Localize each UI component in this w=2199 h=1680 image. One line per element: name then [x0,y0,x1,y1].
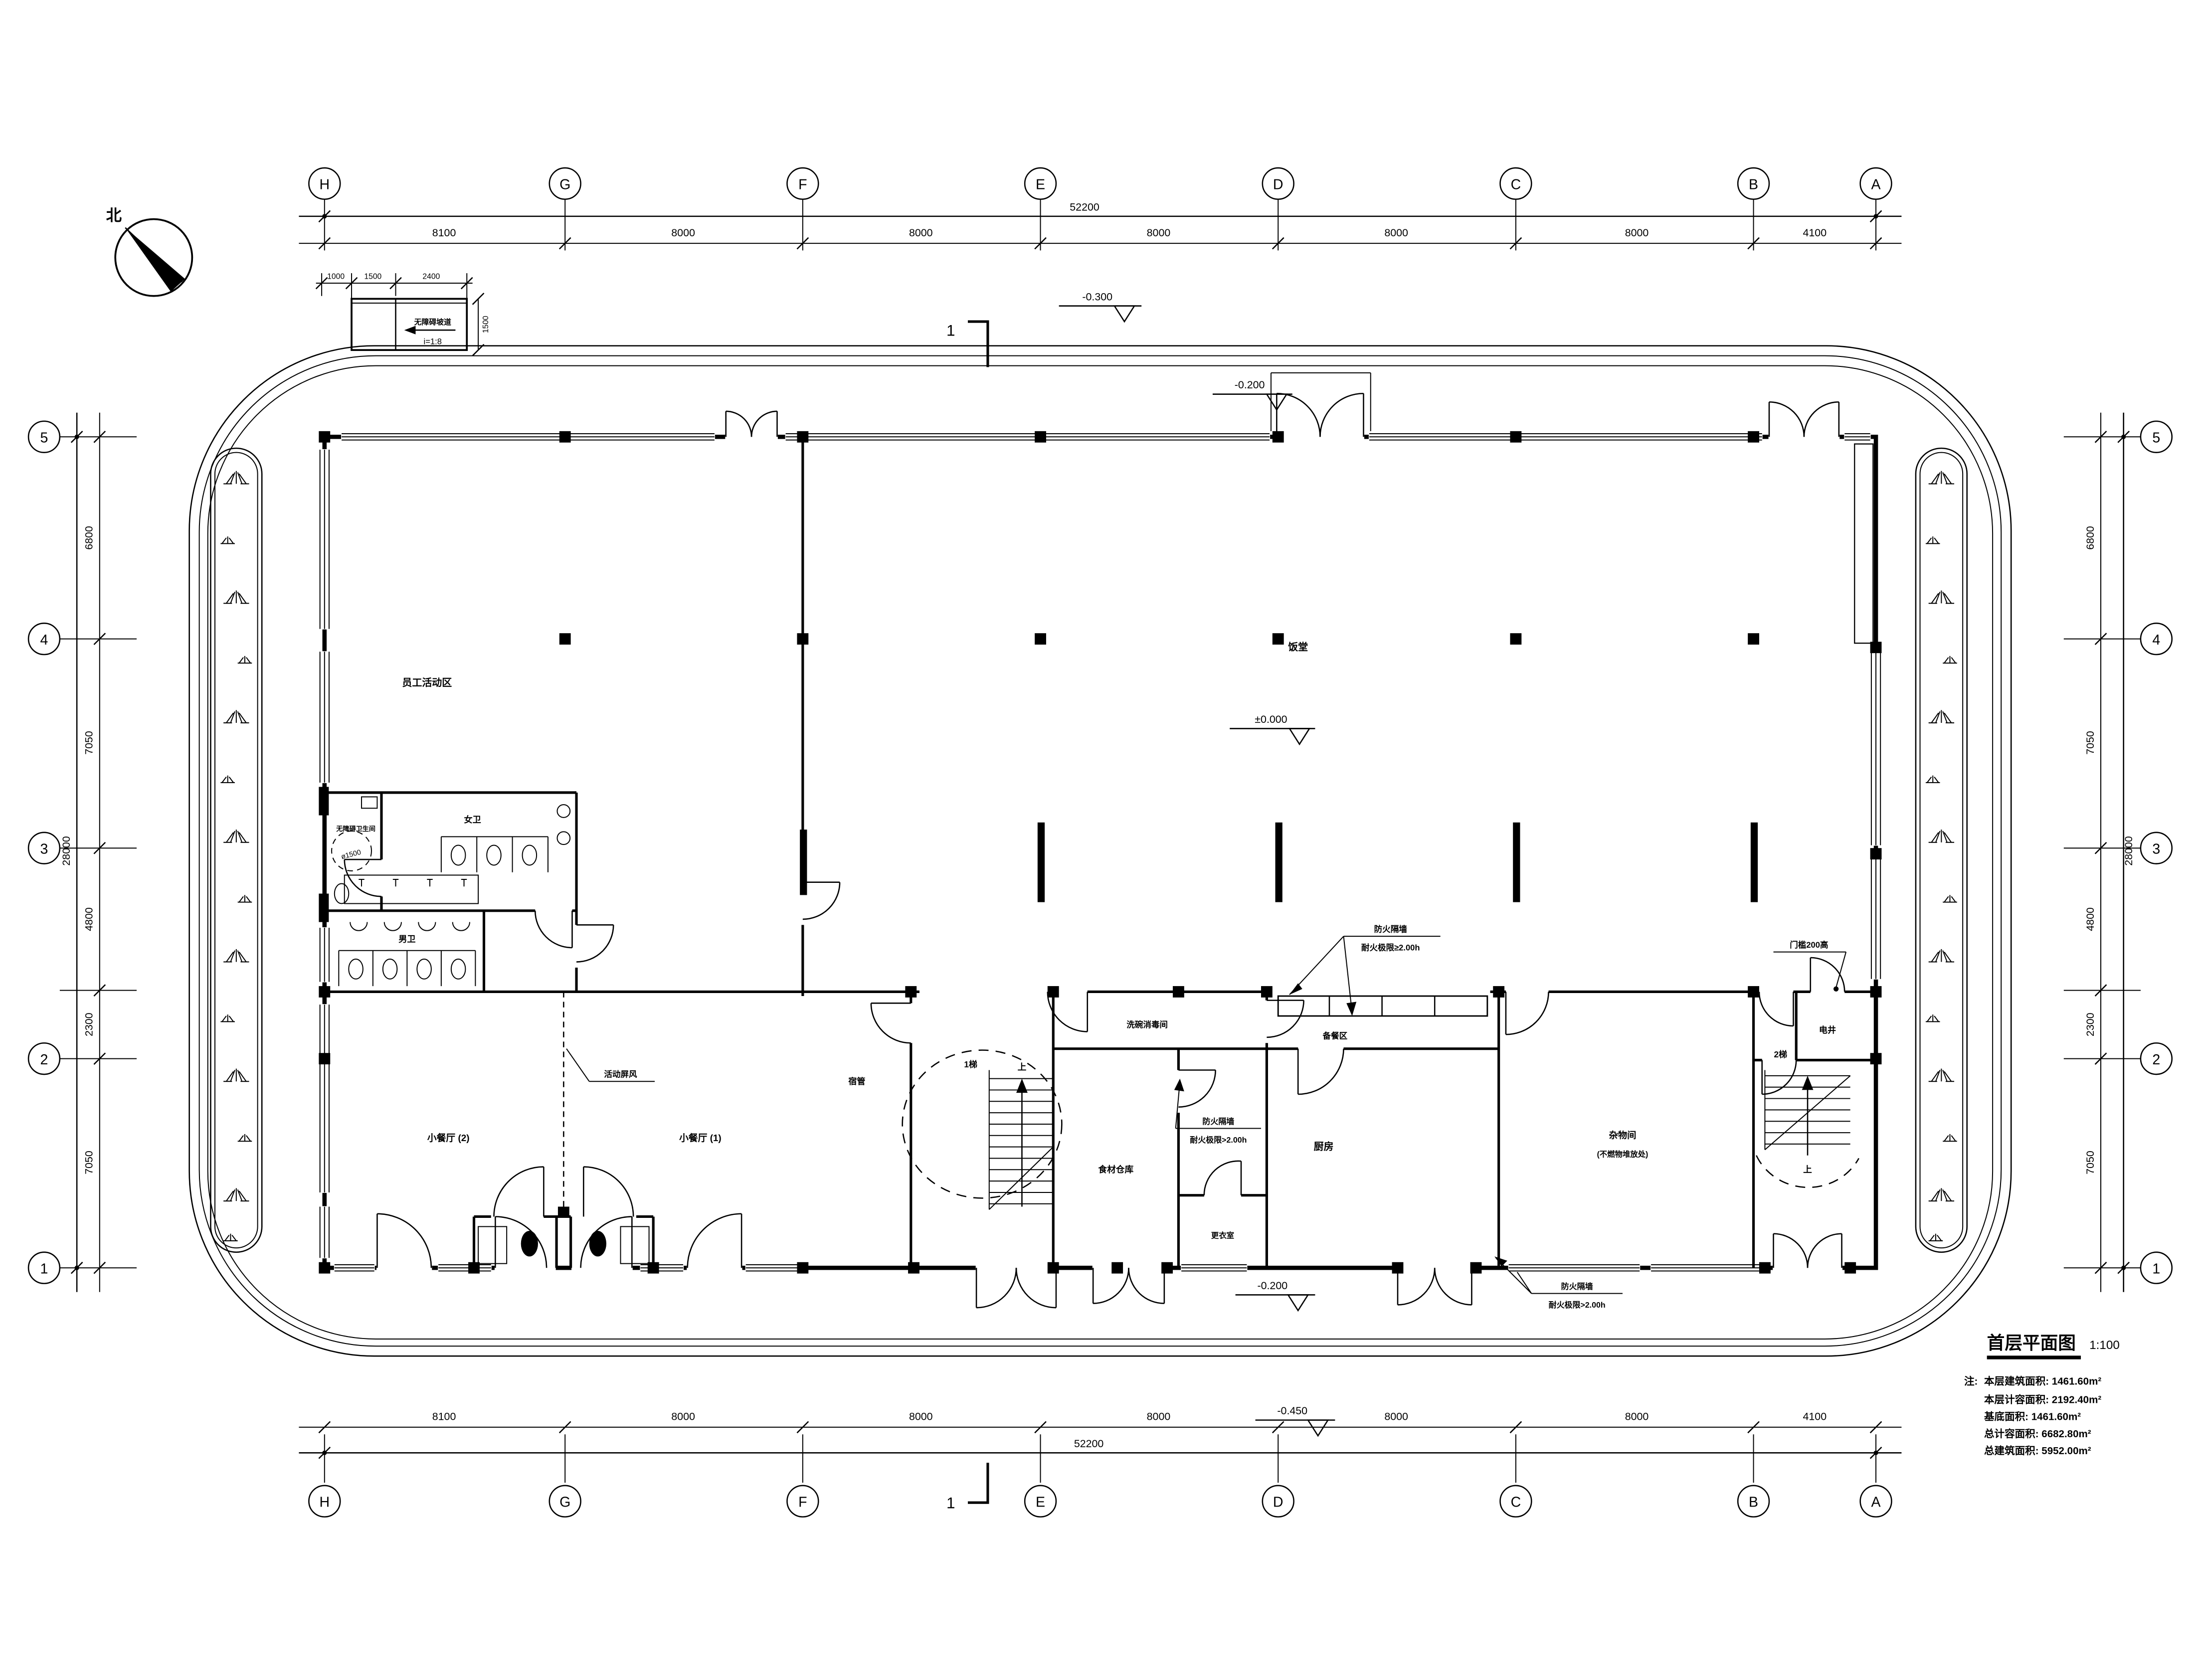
grid-2-right: 2 [2152,1052,2160,1068]
label-womens-wc: 女卫 [464,815,481,825]
fire-rating-text-1: 耐火极限≥2.00h [1361,943,1420,953]
fire-rating-text-3: 耐火极限>2.00h [1549,1300,1606,1310]
vestibule-pod-fixtures [478,1226,649,1263]
dim-right-3: 4800 [2084,907,2096,931]
dim-bot-5: 8000 [1384,1411,1408,1423]
ramp-dimensions: 1000 1500 2400 1500 [316,272,490,355]
dim-right-1: 6800 [2084,526,2096,550]
planting-bed-right [1916,448,1967,1252]
section-mark-top: 1 [946,322,988,367]
dim-total-left: 28000 [60,836,72,866]
grid-bubbles-left: 5 4 3 2 1 [28,421,60,1284]
dim-right-2: 7050 [2084,731,2096,755]
dimension-chain-bottom: 52200 8100 8000 8000 8000 8000 8000 4100… [299,1411,1901,1517]
north-arrow-needle [125,228,185,292]
label-accessible-wc: 无障碍卫生间 [336,825,375,833]
label-serving: 备餐区 [1322,1031,1348,1041]
grid-3-left: 3 [40,841,48,857]
dim-top-7: 4100 [1803,227,1827,239]
section-mark-bottom: 1 [946,1463,988,1512]
room-labels: 员工活动区 饭堂 无障碍卫生间 ø1500 女卫 男卫 小餐厅 (2) 小餐厅 … [336,641,1836,1240]
dim-right-5: 7050 [2084,1151,2096,1175]
dim-left-2: 7050 [83,731,95,755]
label-stair1: 1梯 [964,1059,977,1069]
ramp-label: 无障碍坡道 [414,318,451,327]
grid-C-bot: C [1511,1495,1521,1511]
site-boundary [189,346,2012,1356]
grid-4-left: 4 [40,632,48,648]
fire-rating-text-2: 耐火极限>2.00h [1190,1135,1247,1145]
dimension-chain-right: 28000 6800 7050 4800 2300 7050 5 4 3 2 1 [2064,413,2172,1292]
label-dining-hall: 饭堂 [1287,641,1308,653]
label-stair1-up: 上 [1018,1062,1027,1072]
dimension-chain-top: 52200 8100 8000 8000 8000 8000 8000 4100… [299,168,1901,251]
note-prefix: 注: [1964,1375,1978,1387]
dimension-chain-left: 28000 6800 7050 4800 2300 7050 5 4 3 2 1 [28,413,137,1292]
level-site-south: -0.450 [1256,1405,1335,1436]
dim-top-3: 8000 [909,227,933,239]
label-stair2-up: 上 [1803,1165,1812,1175]
grid-A-top: A [1871,177,1881,193]
floor-plan-drawing: 北 无障碍坡道 i=1:8 1000 1500 2400 1500 [0,0,2199,1679]
label-dish-wash: 洗碗消毒间 [1126,1019,1168,1029]
movable-screen-note: 活动屏风 [566,1049,655,1082]
grid-F-top: F [798,177,807,193]
drawing-title: 首层平面图 [1987,1333,2076,1353]
dim-bot-4: 8000 [1147,1411,1171,1423]
label-mens-wc: 男卫 [398,935,415,944]
label-kitchen: 厨房 [1314,1140,1334,1152]
grid-5-left: 5 [40,430,48,446]
section-number-top: 1 [946,322,955,339]
svg-text:-0.200: -0.200 [1257,1280,1287,1292]
exterior-door-gaps [377,431,1841,1274]
grid-bubbles-bottom: H G F E D C B A [309,1486,1891,1517]
grid-4-right: 4 [2152,632,2160,648]
dim-bot-7: 4100 [1803,1411,1827,1423]
dim-left-1: 6800 [83,526,95,550]
hatched-strip-ne [1854,444,1873,644]
dim-left-4: 2300 [83,1012,95,1036]
dim-right-4: 2300 [2084,1012,2096,1036]
note-line-3: 基底面积: 1461.60m² [1984,1411,2081,1423]
label-elec-shaft: 电井 [1819,1025,1836,1035]
svg-text:±0.000: ±0.000 [1255,713,1287,725]
dim-bot-1: 8100 [432,1411,456,1423]
note-line-4: 总计容面积: 6682.80m² [1984,1428,2091,1440]
label-changing: 更衣室 [1211,1230,1234,1240]
grid-H-bot: H [319,1495,330,1511]
grid-E-top: E [1036,177,1045,193]
svg-text:-0.300: -0.300 [1082,291,1112,303]
label-stair2: 2梯 [1774,1049,1787,1059]
serving-counter [1278,996,1487,1016]
grid-3-right: 3 [2152,841,2160,857]
interior-doors [345,859,1844,1216]
ramp-dim-2400: 2400 [422,272,440,281]
label-food-storage: 食材仓库 [1098,1164,1133,1175]
grid-1-right: 1 [2152,1261,2160,1277]
interior-walls [325,437,1876,1268]
ramp-dim-1000: 1000 [327,272,345,281]
accessible-ramp: 无障碍坡道 i=1:8 1000 1500 2400 1500 [316,272,490,355]
ramp-slope: i=1:8 [424,337,442,346]
label-dorm-admin: 宿管 [848,1076,865,1086]
fire-wall-note-upper: 防火隔墙 耐火极限≥2.00h [1289,924,1441,1016]
planting-bed-left [210,448,262,1252]
grid-E-bot: E [1036,1495,1045,1511]
label-movable-screen: 活动屏风 [604,1069,637,1079]
north-arrow: 北 [106,206,192,296]
dim-left-3: 4800 [83,907,95,931]
grid-G-top: G [559,177,570,193]
dim-top-6: 8000 [1625,227,1649,239]
dim-top-5: 8000 [1384,227,1408,239]
label-sundries-2: (不燃物堆放处) [1597,1150,1649,1159]
dim-top-1: 8100 [432,227,456,239]
movable-screen-line [558,992,569,1216]
stair-1 [903,1050,1062,1210]
dim-bot-2: 8000 [671,1411,695,1423]
ramp-dim-width: 1500 [482,316,490,333]
dim-bot-6: 8000 [1625,1411,1649,1423]
title-block: 首层平面图 1:100 注: 本层建筑面积: 1461.60m² 本层计容面积:… [1964,1333,2120,1457]
svg-text:-0.200: -0.200 [1235,379,1265,391]
threshold-note: 门槛200高 [1774,940,1846,992]
grid-bubbles-top: H G F E D C B A [309,168,1891,199]
fire-wall-text-1: 防火隔墙 [1374,924,1408,934]
section-number-bottom: 1 [946,1495,955,1512]
drawing-sheet: 北 无障碍坡道 i=1:8 1000 1500 2400 1500 [0,0,2199,1679]
dim-total-right: 28000 [2123,836,2135,866]
fire-wall-note-middle: 防火隔墙 耐火极限>2.00h [1174,1079,1261,1145]
fire-wall-text-2: 防火隔墙 [1202,1117,1234,1126]
grid-B-top: B [1749,177,1758,193]
note-line-1: 本层建筑面积: 1461.60m² [1984,1375,2101,1387]
grid-H-top: H [319,177,330,193]
drawing-scale: 1:100 [2089,1339,2120,1352]
grid-B-bot: B [1749,1495,1758,1511]
dim-total-top: 52200 [1070,201,1099,213]
grid-A-bot: A [1871,1495,1881,1511]
grid-D-top: D [1273,177,1283,193]
windows-north [342,431,1870,443]
dim-left-5: 7050 [83,1151,95,1175]
dim-bot-3: 8000 [909,1411,933,1423]
label-small-dining-1: 小餐厅 (1) [679,1132,722,1143]
dim-top-2: 8000 [671,227,695,239]
grid-2-left: 2 [40,1052,48,1068]
grid-1-left: 1 [40,1261,48,1277]
north-label: 北 [106,206,122,224]
svg-text:-0.450: -0.450 [1277,1405,1307,1417]
note-line-5: 总建筑面积: 5952.00m² [1984,1445,2091,1457]
level-hall: ±0.000 [1230,713,1315,744]
dim-total-bottom: 52200 [1074,1438,1104,1450]
level-south-entry: -0.200 [1236,1280,1315,1311]
columns [319,431,1881,1274]
dim-top-4: 8000 [1147,227,1171,239]
level-north-entry: -0.200 [1213,379,1292,410]
exterior-wall [325,437,1876,1268]
level-path: -0.300 [1059,291,1142,322]
fire-wall-text-3: 防火隔墙 [1561,1282,1593,1291]
grid-G-bot: G [559,1495,570,1511]
label-staff-activity: 员工活动区 [402,677,452,688]
label-threshold: 门槛200高 [1790,940,1828,950]
grid-bubbles-right: 5 4 3 2 1 [2141,421,2172,1284]
grid-D-bot: D [1273,1495,1283,1511]
label-small-dining-2: 小餐厅 (2) [427,1132,470,1143]
label-sundries-1: 杂物间 [1609,1130,1637,1140]
ramp-dim-1500: 1500 [364,272,381,281]
grid-C-top: C [1511,177,1521,193]
grid-5-right: 5 [2152,430,2160,446]
grid-F-bot: F [798,1495,807,1511]
north-entrance-landing [1271,373,1371,431]
note-line-2: 本层计容面积: 2192.40m² [1984,1393,2101,1405]
